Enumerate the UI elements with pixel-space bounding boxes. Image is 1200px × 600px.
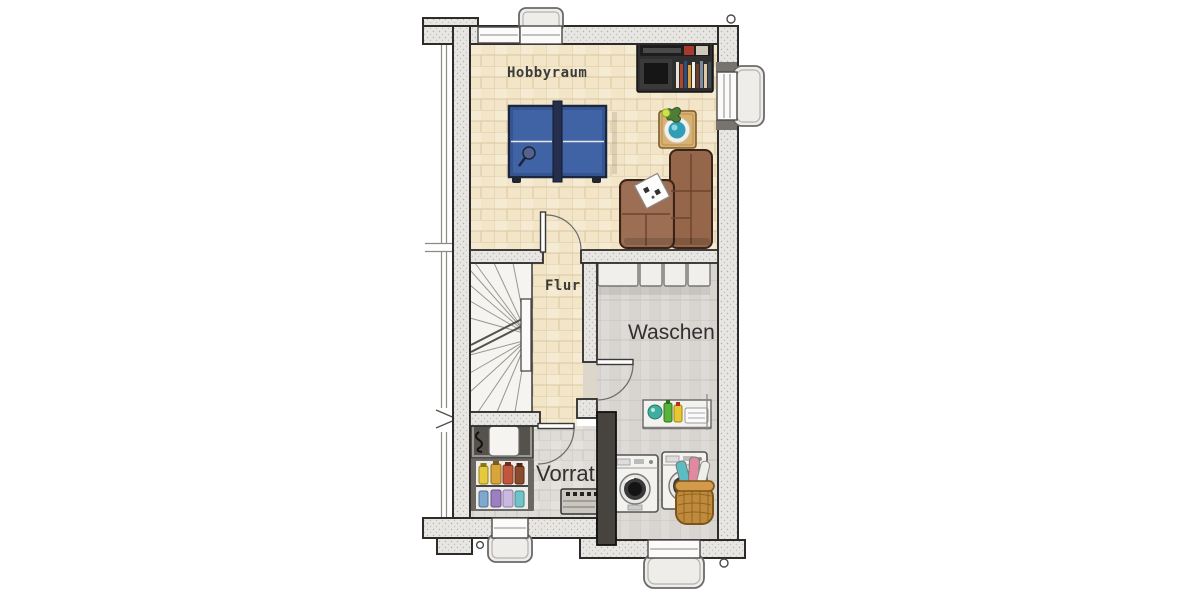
storage-shelf xyxy=(471,460,533,510)
jars-bottom-row xyxy=(479,490,524,507)
top-window-lightwell xyxy=(519,8,563,44)
property-boundary-lines xyxy=(425,44,453,518)
floor-plan-drawing: Hobbyraum Flur Waschen Vorrat xyxy=(0,0,1200,600)
freezer xyxy=(471,424,533,458)
room-label-waschen: Waschen xyxy=(628,321,715,344)
top-left-wall-lip xyxy=(423,18,478,26)
room-label-vorrat: Vorrat xyxy=(536,461,595,486)
vorrat-waschen-wall xyxy=(597,412,616,545)
laundry-basket xyxy=(675,457,714,524)
vorrat-window-lightwell xyxy=(488,518,532,562)
waschen-window-lightwell xyxy=(644,540,704,588)
room-label-hobbyraum: Hobbyraum xyxy=(507,65,587,81)
right-window-lightwell xyxy=(716,62,764,130)
ping-pong-table xyxy=(509,101,617,183)
bottom-left-foot xyxy=(437,538,472,554)
media-shelf xyxy=(637,42,713,92)
wall-cabinets xyxy=(598,262,710,295)
floor-plan-page: Hobbyraum Flur Waschen Vorrat xyxy=(0,0,1200,600)
top-window-left xyxy=(478,27,520,43)
left-wall xyxy=(453,26,470,522)
book-spines xyxy=(676,61,711,88)
room-label-flur: Flur xyxy=(545,278,581,294)
plant-side-table xyxy=(659,108,696,148)
laundry-shelf xyxy=(643,394,711,430)
